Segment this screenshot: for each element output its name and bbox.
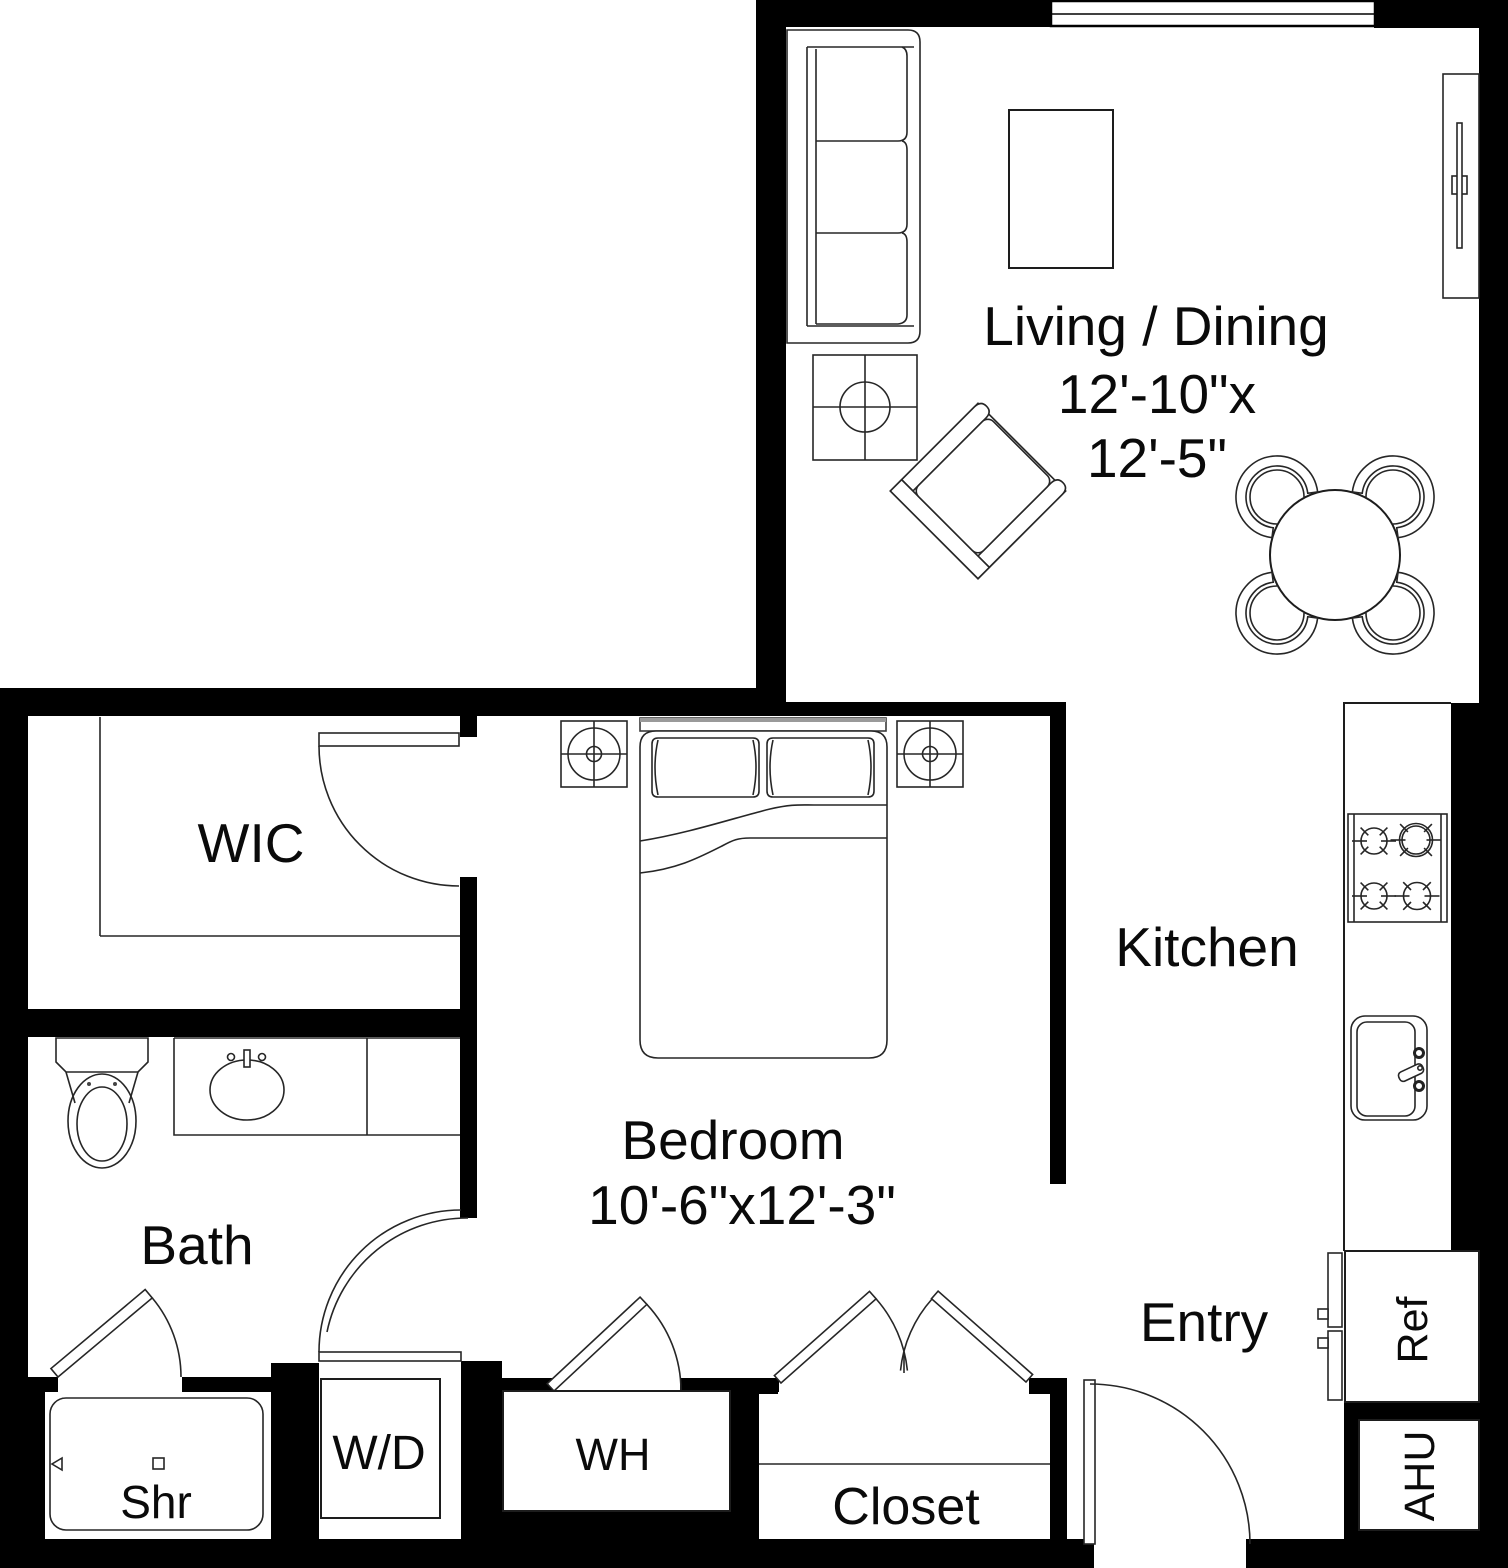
svg-text:Bedroom: Bedroom	[621, 1109, 844, 1171]
svg-text:12'-5": 12'-5"	[1087, 427, 1227, 489]
svg-text:Entry: Entry	[1140, 1291, 1269, 1353]
svg-text:Living / Dining: Living / Dining	[983, 295, 1328, 357]
svg-text:WIC: WIC	[198, 812, 305, 874]
svg-text:10'-6"x12'-3": 10'-6"x12'-3"	[588, 1174, 896, 1236]
svg-text:WH: WH	[576, 1429, 651, 1480]
svg-text:AHU: AHU	[1396, 1431, 1444, 1522]
svg-text:Bath: Bath	[140, 1214, 253, 1276]
svg-text:Closet: Closet	[832, 1478, 980, 1536]
svg-text:Kitchen: Kitchen	[1115, 916, 1298, 978]
svg-text:Ref: Ref	[1389, 1295, 1437, 1363]
svg-text:W/D: W/D	[332, 1427, 425, 1480]
svg-text:12'-10"x: 12'-10"x	[1058, 363, 1256, 425]
svg-text:Shr: Shr	[120, 1476, 192, 1528]
